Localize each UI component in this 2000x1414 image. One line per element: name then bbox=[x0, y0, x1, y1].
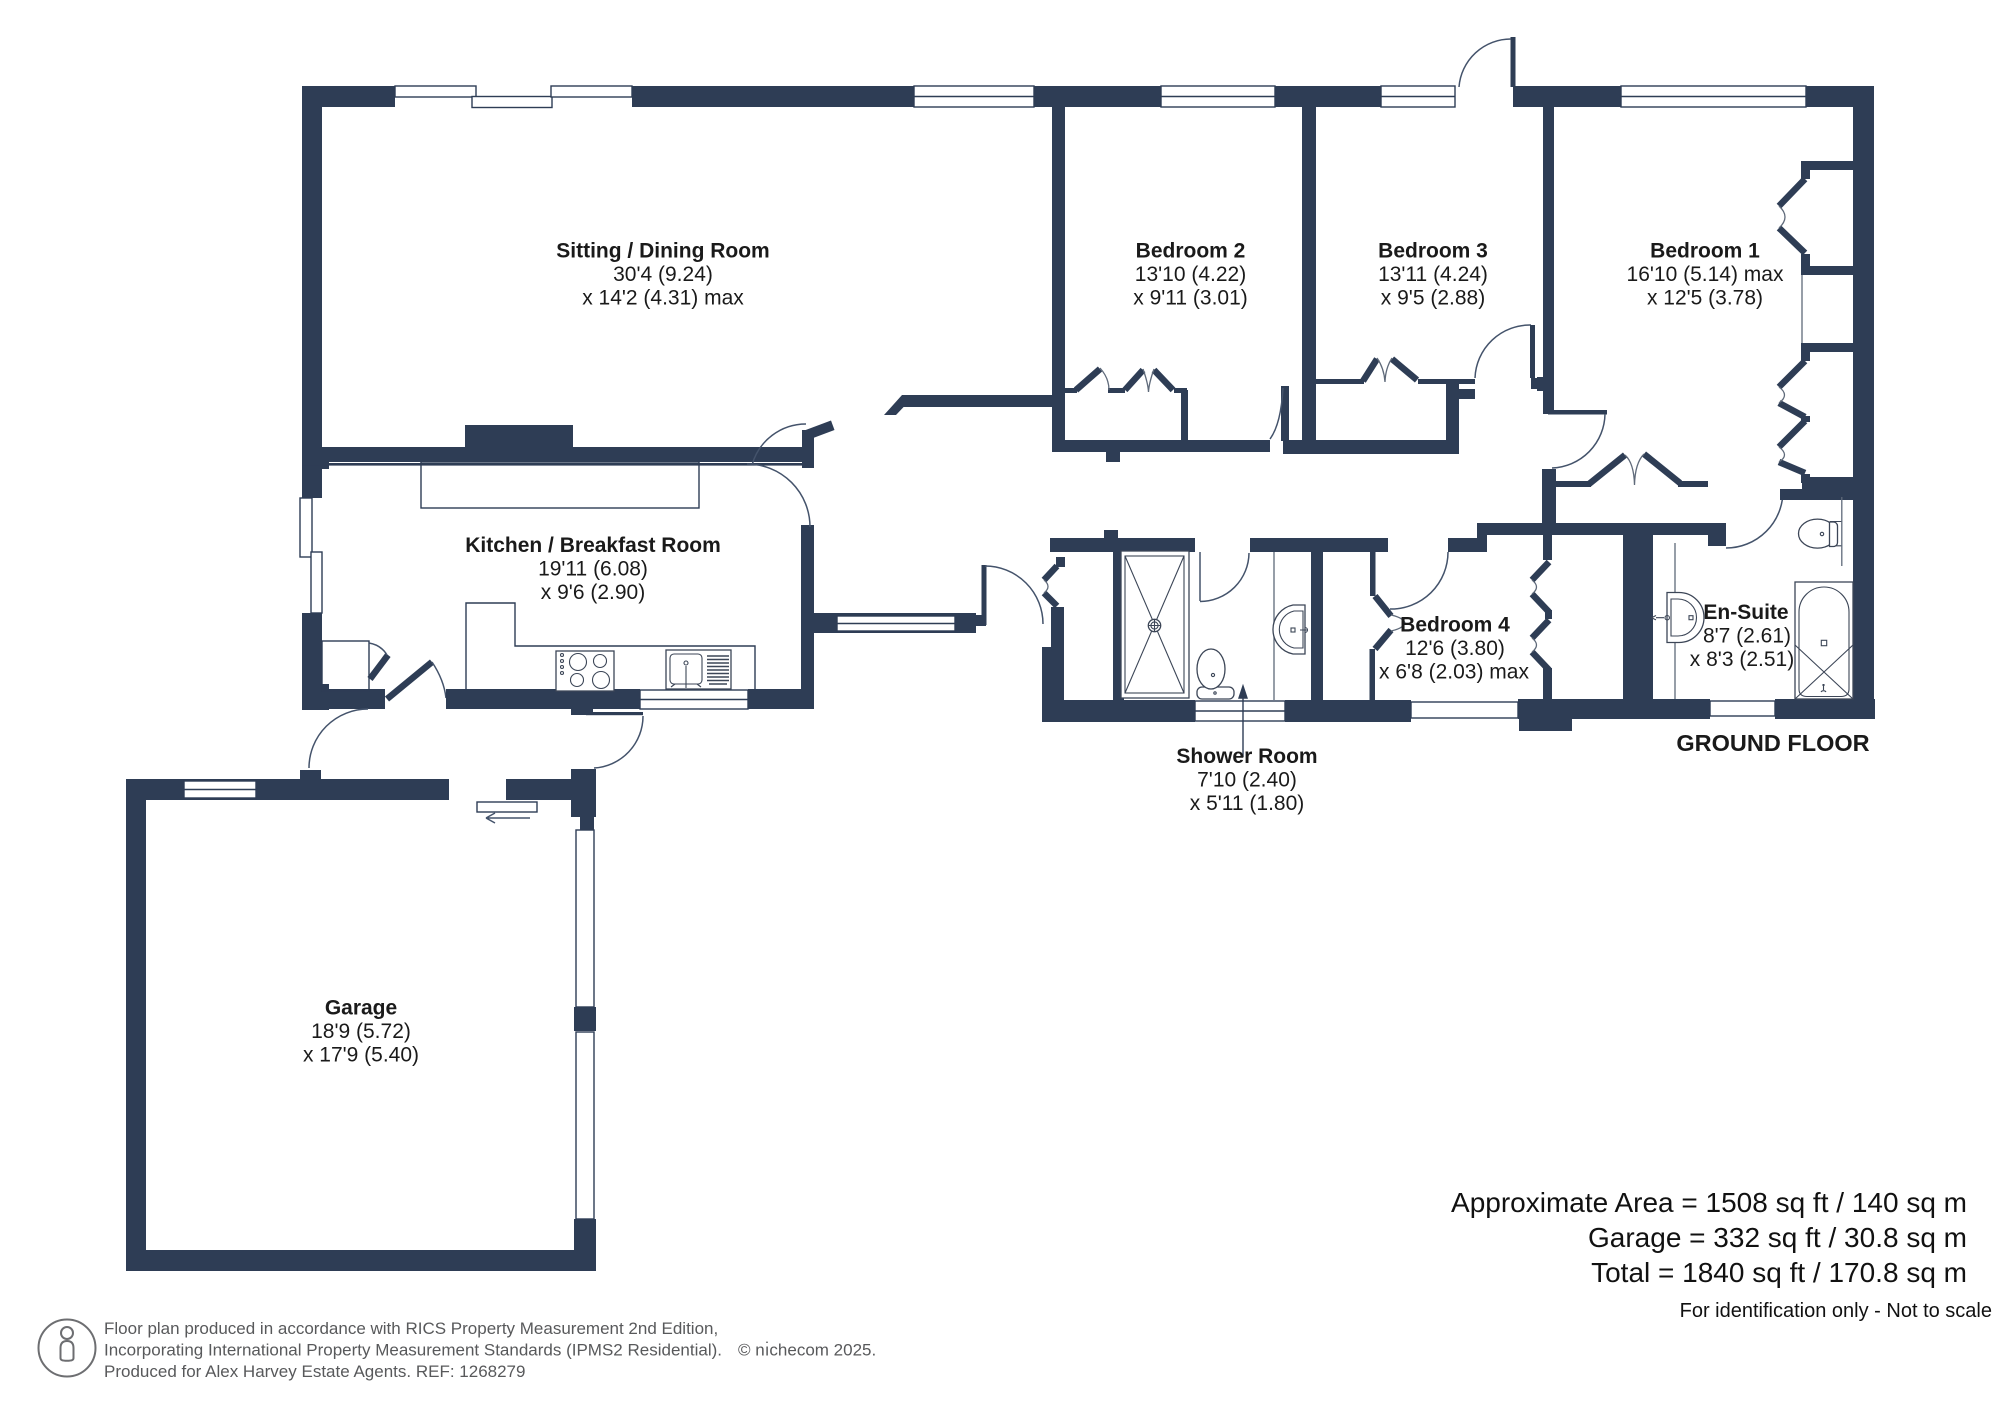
svg-text:Bedroom 2: Bedroom 2 bbox=[1136, 240, 1246, 263]
svg-text:x 5'11 (1.80): x 5'11 (1.80) bbox=[1190, 792, 1305, 815]
svg-text:Garage = 332 sq ft / 30.8 sq m: Garage = 332 sq ft / 30.8 sq m bbox=[1588, 1222, 1967, 1253]
svg-text:30'4 (9.24): 30'4 (9.24) bbox=[613, 263, 713, 286]
svg-text:13'10 (4.22): 13'10 (4.22) bbox=[1135, 263, 1246, 286]
svg-text:Floor plan produced in accorda: Floor plan produced in accordance with R… bbox=[104, 1319, 718, 1338]
svg-text:x 17'9 (5.40): x 17'9 (5.40) bbox=[303, 1044, 419, 1067]
svg-text:Kitchen / Breakfast Room: Kitchen / Breakfast Room bbox=[465, 534, 721, 557]
svg-text:Incorporating International Pr: Incorporating International Property Mea… bbox=[104, 1341, 722, 1360]
svg-text:19'11 (6.08): 19'11 (6.08) bbox=[538, 558, 648, 581]
svg-text:16'10 (5.14) max: 16'10 (5.14) max bbox=[1627, 263, 1784, 286]
svg-text:For identification only - Not: For identification only - Not to scale bbox=[1680, 1300, 1992, 1322]
svg-text:© nı̇checom 2025.: © nı̇checom 2025. bbox=[738, 1341, 876, 1360]
svg-text:x 9'6 (2.90): x 9'6 (2.90) bbox=[541, 581, 645, 604]
svg-text:Bedroom 3: Bedroom 3 bbox=[1378, 240, 1488, 263]
svg-text:Total = 1840 sq ft / 170.8 sq: Total = 1840 sq ft / 170.8 sq m bbox=[1591, 1257, 1967, 1288]
svg-text:Produced for Alex Harvey Estat: Produced for Alex Harvey Estate Agents. … bbox=[104, 1362, 525, 1381]
svg-text:GROUND FLOOR: GROUND FLOOR bbox=[1676, 730, 1869, 756]
svg-text:Shower Room: Shower Room bbox=[1176, 745, 1317, 768]
svg-text:18'9 (5.72): 18'9 (5.72) bbox=[311, 1020, 411, 1043]
svg-text:En-Suite: En-Suite bbox=[1703, 601, 1788, 624]
svg-text:Bedroom 4: Bedroom 4 bbox=[1400, 614, 1510, 637]
svg-text:12'6 (3.80): 12'6 (3.80) bbox=[1405, 637, 1505, 660]
svg-text:x 14'2 (4.31) max: x 14'2 (4.31) max bbox=[582, 287, 744, 310]
svg-text:x 8'3 (2.51): x 8'3 (2.51) bbox=[1690, 648, 1794, 671]
svg-text:13'11 (4.24): 13'11 (4.24) bbox=[1378, 263, 1488, 286]
svg-text:Approximate Area = 1508 sq ft: Approximate Area = 1508 sq ft / 140 sq m bbox=[1451, 1187, 1967, 1218]
svg-text:x 9'5 (2.88): x 9'5 (2.88) bbox=[1381, 287, 1485, 310]
svg-text:x 12'5 (3.78): x 12'5 (3.78) bbox=[1647, 287, 1763, 310]
svg-text:7'10 (2.40): 7'10 (2.40) bbox=[1197, 769, 1297, 792]
svg-text:Bedroom 1: Bedroom 1 bbox=[1650, 240, 1760, 263]
svg-text:Sitting / Dining Room: Sitting / Dining Room bbox=[556, 240, 769, 263]
svg-text:x 6'8 (2.03) max: x 6'8 (2.03) max bbox=[1379, 661, 1529, 684]
svg-text:x 9'11 (3.01): x 9'11 (3.01) bbox=[1133, 287, 1248, 310]
svg-text:Garage: Garage bbox=[325, 997, 397, 1020]
svg-text:8'7 (2.61): 8'7 (2.61) bbox=[1703, 625, 1791, 648]
